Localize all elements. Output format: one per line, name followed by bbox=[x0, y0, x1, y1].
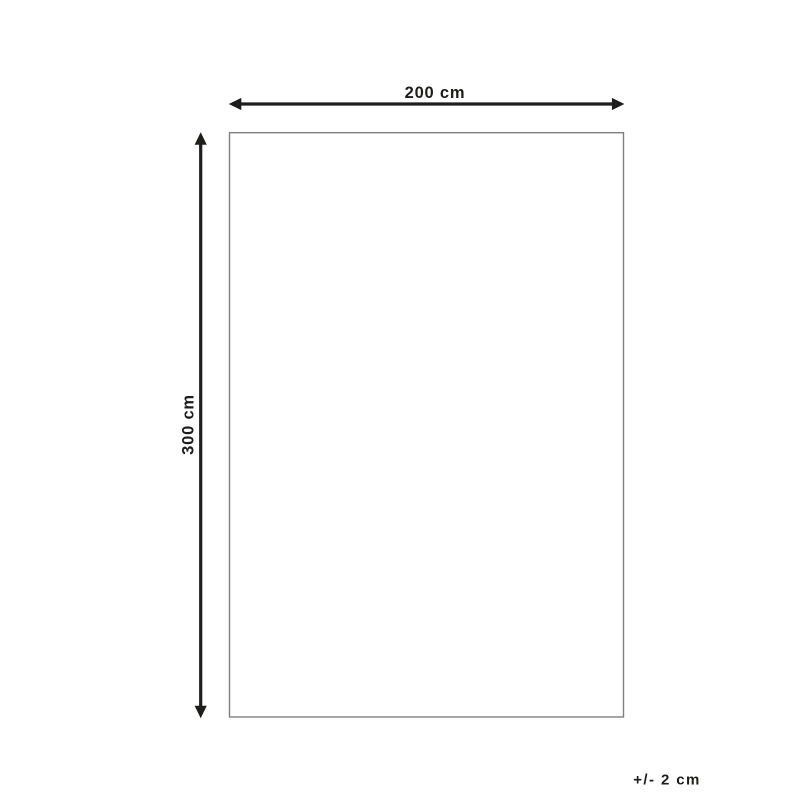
svg-text:+/- 2 cm: +/- 2 cm bbox=[633, 771, 700, 788]
svg-text:200 cm: 200 cm bbox=[405, 84, 466, 102]
svg-text:300 cm: 300 cm bbox=[179, 394, 197, 455]
